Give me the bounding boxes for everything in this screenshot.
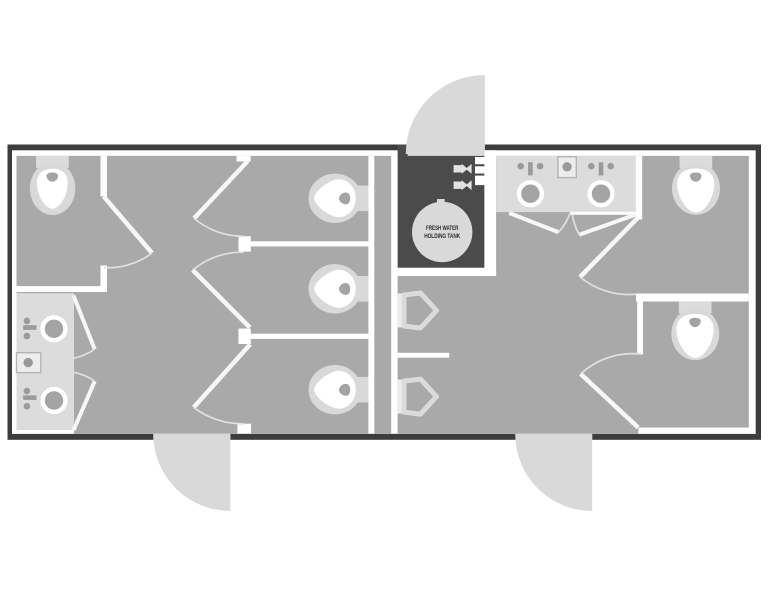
svg-text:FRESH WATER: FRESH WATER [426, 225, 459, 232]
svg-text:HOLDING TANK: HOLDING TANK [424, 233, 460, 240]
